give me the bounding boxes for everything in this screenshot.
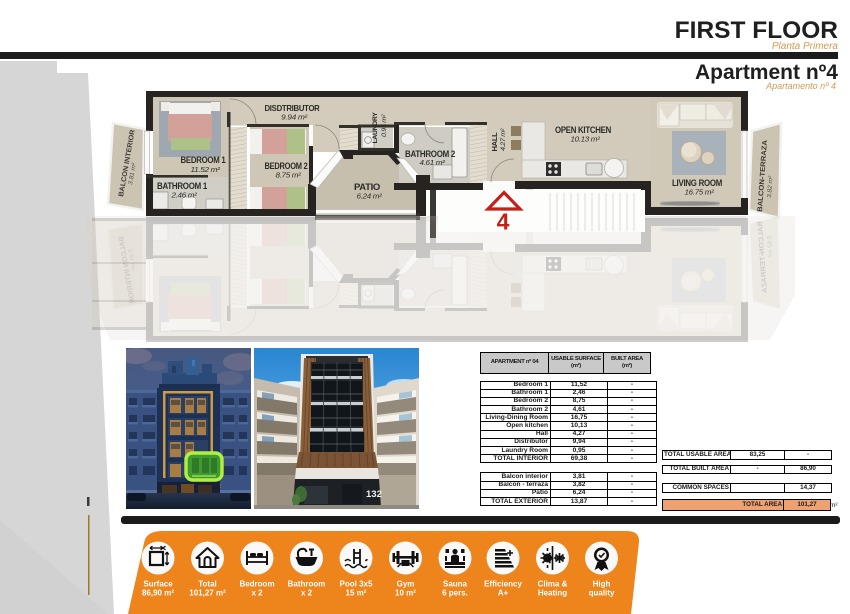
svg-text:Total: Total [198, 580, 217, 589]
svg-text:86,90 m²: 86,90 m² [142, 589, 174, 598]
svg-text:Surface: Surface [143, 580, 173, 589]
svg-text:10 m²: 10 m² [395, 589, 416, 598]
svg-text:quality: quality [589, 589, 615, 598]
svg-text:High: High [593, 580, 611, 589]
svg-text:x 2: x 2 [301, 589, 313, 598]
svg-text:Bedroom: Bedroom [239, 580, 274, 589]
svg-text:15 m²: 15 m² [346, 589, 367, 598]
svg-text:6 pers.: 6 pers. [442, 589, 468, 598]
svg-text:Efficiency: Efficiency [484, 580, 522, 589]
svg-text:Bathroom: Bathroom [288, 580, 326, 589]
svg-text:Pool 3x5: Pool 3x5 [340, 580, 373, 589]
svg-text:Clima &: Clima & [538, 580, 568, 589]
svg-text:Heating: Heating [538, 589, 567, 598]
svg-text:Sauna: Sauna [443, 580, 468, 589]
svg-text:A+: A+ [498, 589, 509, 598]
svg-text:Gym: Gym [397, 580, 415, 589]
svg-text:x 2: x 2 [251, 589, 263, 598]
svg-text:101,27 m²: 101,27 m² [189, 589, 226, 598]
